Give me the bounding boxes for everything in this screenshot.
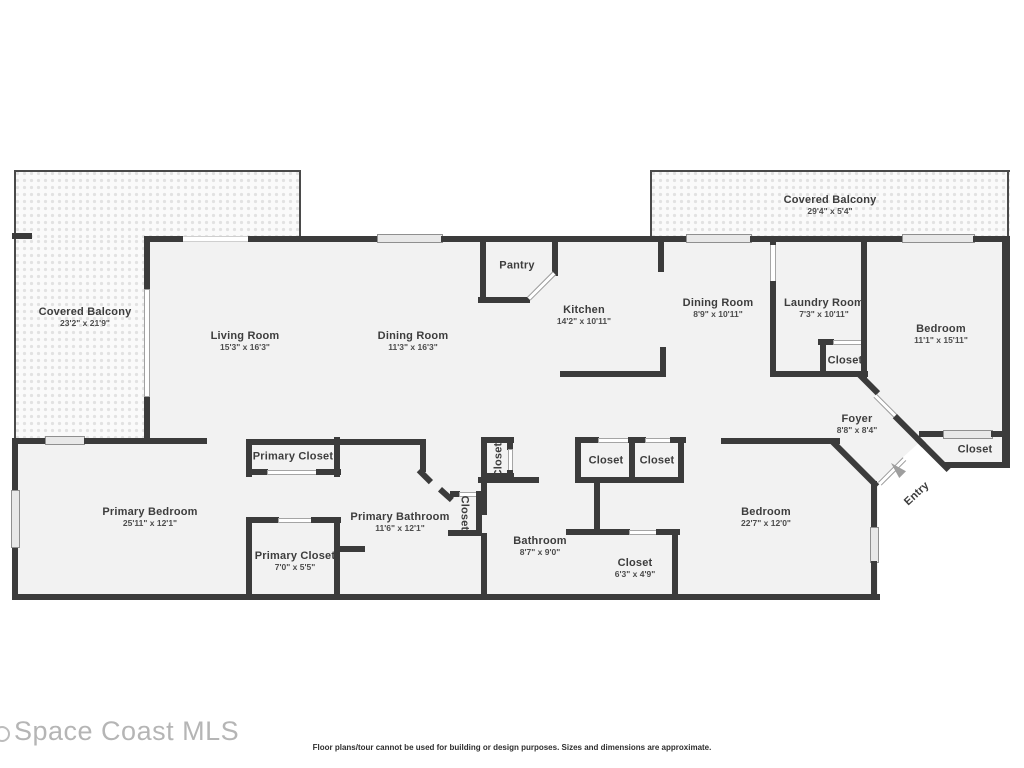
room-dimensions: 7'3" x 10'11": [784, 309, 864, 319]
wall: [12, 548, 18, 600]
wall: [566, 529, 630, 535]
room-label-pantry: Pantry: [499, 260, 534, 273]
window: [943, 430, 993, 439]
wall: [480, 238, 486, 303]
room-dimensions: 7'0" x 5'5": [255, 562, 335, 572]
wall: [770, 238, 776, 245]
balcony-border: [299, 170, 301, 238]
wall: [770, 281, 776, 377]
wall: [1002, 236, 1010, 468]
room-dimensions: 25'11" x 12'1": [102, 518, 197, 528]
room-name: Closet: [828, 355, 863, 368]
room-dimensions: 23'2" x 21'9": [39, 318, 132, 328]
wall-stub: [334, 546, 365, 552]
window: [45, 436, 85, 445]
wall: [594, 480, 600, 535]
wall: [84, 438, 207, 444]
closet-door: [598, 438, 629, 443]
room-label-closet-a: Closet: [589, 455, 624, 468]
disclaimer-text: Floor plans/tour cannot be used for buil…: [0, 743, 1024, 752]
wall: [441, 236, 688, 242]
room-name: Pantry: [499, 260, 534, 273]
room-name: Primary Closet: [255, 550, 335, 563]
room-dimensions: 8'7" x 9'0": [513, 547, 567, 557]
room-dimensions: 29'4" x 5'4": [784, 206, 877, 216]
room-label-primary-closet-bottom: Primary Closet7'0" x 5'5": [255, 550, 335, 572]
room-label-bathroom: Bathroom8'7" x 9'0": [513, 535, 567, 557]
room-name: Closet: [589, 455, 624, 468]
wall-stub: [316, 469, 341, 475]
wall: [144, 397, 150, 443]
window: [11, 490, 20, 548]
room-name: Closet: [493, 443, 506, 478]
room-name: Primary Bathroom: [350, 511, 449, 524]
room-name: Covered Balcony: [784, 194, 877, 207]
room-name: Laundry Room: [784, 297, 864, 310]
room-dimensions: 14'2" x 10'11": [557, 316, 611, 326]
wall: [919, 431, 945, 437]
room-name: Closet: [615, 557, 655, 570]
closet-door: [645, 438, 671, 443]
wall: [575, 477, 684, 483]
closet-door: [278, 518, 312, 523]
wall: [12, 594, 880, 600]
door-opening: [770, 245, 776, 281]
floorplan-canvas: Covered Balcony23'2" x 21'9"Living Room1…: [0, 0, 1024, 768]
room-label-closet-b: Closet: [640, 455, 675, 468]
room-name: Entry: [902, 479, 932, 508]
wall-stub: [818, 339, 834, 345]
room-dimensions: 8'8" x 8'4": [837, 425, 877, 435]
wall: [448, 530, 482, 536]
room-name: Dining Room: [378, 330, 449, 343]
wall-stub: [246, 469, 268, 475]
room-label-kitchen: Kitchen14'2" x 10'11": [557, 304, 611, 326]
wall: [481, 533, 487, 597]
balcony-border: [650, 170, 652, 238]
wall-stub: [12, 233, 32, 239]
room-name: Bathroom: [513, 535, 567, 548]
room-label-laundry-room: Laundry Room7'3" x 10'11": [784, 297, 864, 319]
room-name: Foyer: [837, 413, 877, 426]
room-name: Primary Closet: [253, 451, 333, 464]
sliding-door-opening: [183, 236, 248, 242]
room-name: Primary Bedroom: [102, 506, 197, 519]
room-dimensions: 11'6" x 12'1": [350, 523, 449, 533]
room-label-dining-room: Dining Room11'3" x 16'3": [378, 330, 449, 352]
closet-door: [267, 470, 317, 475]
room-dimensions: 11'1" x 15'11": [914, 335, 968, 345]
wall: [871, 481, 877, 529]
room-name: Dining Room: [683, 297, 754, 310]
balcony-left-hatch: [14, 170, 301, 238]
wall: [248, 236, 379, 242]
room-label-foyer: Foyer8'8" x 8'4": [837, 413, 877, 435]
room-label-living-room: Living Room15'3" x 16'3": [211, 330, 280, 352]
wall: [144, 236, 150, 289]
room-dimensions: 15'3" x 16'3": [211, 342, 280, 352]
room-name: Bedroom: [741, 506, 791, 519]
room-label-closet-hall: Closet: [493, 443, 506, 478]
wall: [148, 236, 183, 242]
wall: [560, 371, 666, 377]
window: [870, 527, 879, 563]
room-dimensions: 8'9" x 10'11": [683, 309, 754, 319]
room-dimensions: 11'3" x 16'3": [378, 342, 449, 352]
wall: [12, 441, 18, 492]
room-label-primary-closet-top: Primary Closet: [253, 451, 333, 464]
balcony-border: [14, 170, 301, 172]
room-label-bedroom-top-right: Bedroom11'1" x 15'11": [914, 323, 968, 345]
balcony-border: [14, 170, 16, 443]
window: [377, 234, 443, 243]
room-label-laundry-closet: Closet: [828, 355, 863, 368]
room-label-entry: Entry: [902, 479, 932, 508]
room-label-closet-bedroom: Closet6'3" x 4'9": [615, 557, 655, 579]
room-name: Closet: [640, 455, 675, 468]
window: [902, 234, 975, 243]
room-name: Covered Balcony: [39, 306, 132, 319]
closet-door: [629, 530, 657, 535]
room-name: Closet: [958, 444, 993, 457]
room-dimensions: 6'3" x 4'9": [615, 569, 655, 579]
wall: [770, 371, 868, 377]
room-label-closet-right: Closet: [958, 444, 993, 457]
wall: [658, 238, 664, 272]
window: [686, 234, 752, 243]
room-label-covered-balcony-right: Covered Balcony29'4" x 5'4": [784, 194, 877, 216]
wall: [552, 238, 558, 276]
room-label-primary-bedroom: Primary Bedroom25'11" x 12'1": [102, 506, 197, 528]
wall: [721, 438, 840, 444]
room-dimensions: 22'7" x 12'0": [741, 518, 791, 528]
sliding-window: [144, 289, 150, 397]
wall: [944, 462, 1010, 468]
room-name: Kitchen: [557, 304, 611, 317]
wall: [660, 347, 666, 377]
wall: [246, 517, 252, 600]
balcony-border: [1007, 170, 1009, 238]
wall: [672, 529, 678, 597]
wall: [478, 297, 530, 303]
room-name: Living Room: [211, 330, 280, 343]
room-label-covered-balcony-left: Covered Balcony23'2" x 21'9": [39, 306, 132, 328]
room-label-dining-room-2: Dining Room8'9" x 10'11": [683, 297, 754, 319]
room-label-primary-bathroom: Primary Bathroom11'6" x 12'1": [350, 511, 449, 533]
room-label-bedroom-bottom: Bedroom22'7" x 12'0": [741, 506, 791, 528]
closet-door: [508, 449, 513, 471]
room-name: Closet: [458, 496, 471, 531]
room-label-closet-bath: Closet: [458, 496, 471, 531]
balcony-border: [650, 170, 1010, 172]
closet-door: [833, 340, 862, 345]
wall: [478, 477, 539, 483]
balcony-left-hatch: [14, 238, 148, 443]
room-name: Bedroom: [914, 323, 968, 336]
